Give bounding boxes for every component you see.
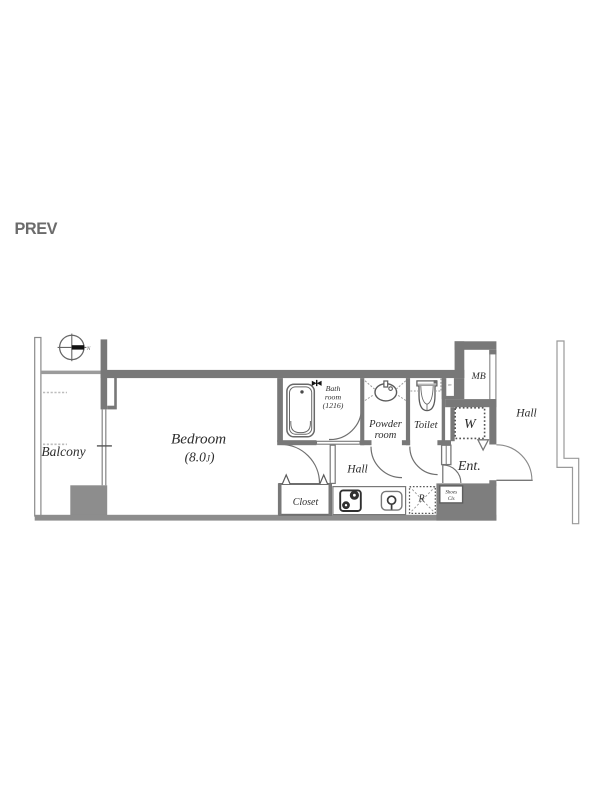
svg-text:Cls: Cls [448, 497, 455, 502]
svg-text:W: W [464, 417, 477, 432]
svg-text:R: R [417, 494, 424, 505]
svg-text:Bedroom: Bedroom [171, 431, 226, 448]
svg-text:PREV: PREV [15, 220, 58, 238]
svg-text:Ent.: Ent. [457, 459, 481, 474]
svg-text:Toilet: Toilet [414, 420, 439, 431]
svg-text:Closet: Closet [293, 497, 319, 508]
svg-text:room: room [375, 430, 397, 441]
svg-text:Shoes: Shoes [445, 491, 457, 496]
svg-text:(8.0J): (8.0J) [185, 450, 215, 465]
svg-text:N: N [86, 346, 91, 352]
svg-text:Balcony: Balcony [41, 444, 85, 459]
svg-text:Powder: Powder [368, 419, 403, 430]
svg-text:Hall: Hall [346, 464, 367, 476]
svg-text:Hall: Hall [515, 408, 536, 420]
svg-text:(1216): (1216) [323, 401, 344, 410]
svg-text:MB: MB [471, 371, 486, 382]
